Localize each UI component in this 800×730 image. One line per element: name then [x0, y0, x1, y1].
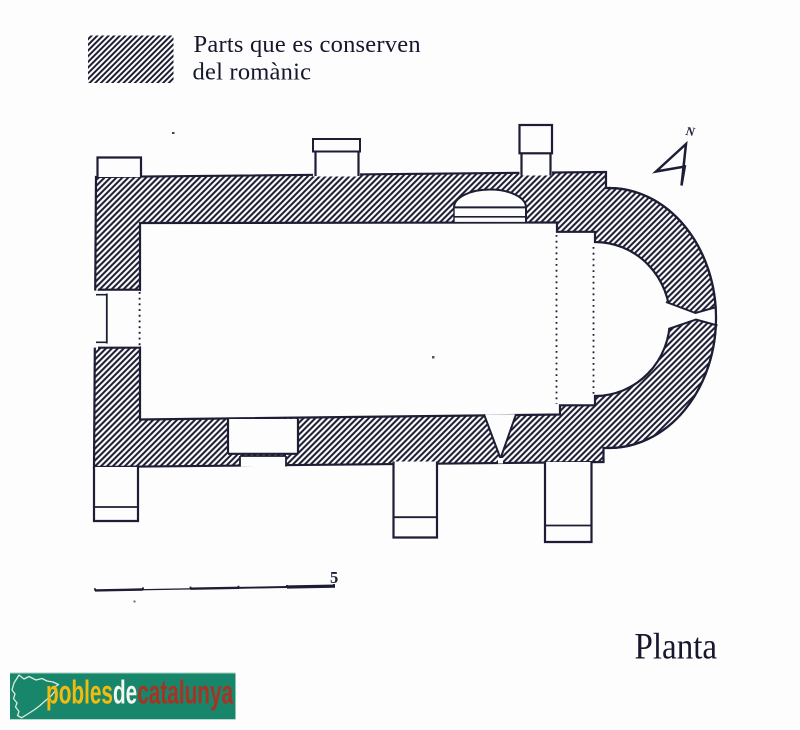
svg-text:5: 5 — [330, 568, 338, 587]
svg-text:del romànic: del romànic — [193, 58, 312, 85]
svg-text:poblesdecatalunya: poblesdecatalunya — [46, 674, 234, 711]
svg-text:Planta: Planta — [635, 626, 718, 667]
svg-text:Parts que es conserven: Parts que es conserven — [194, 31, 421, 58]
